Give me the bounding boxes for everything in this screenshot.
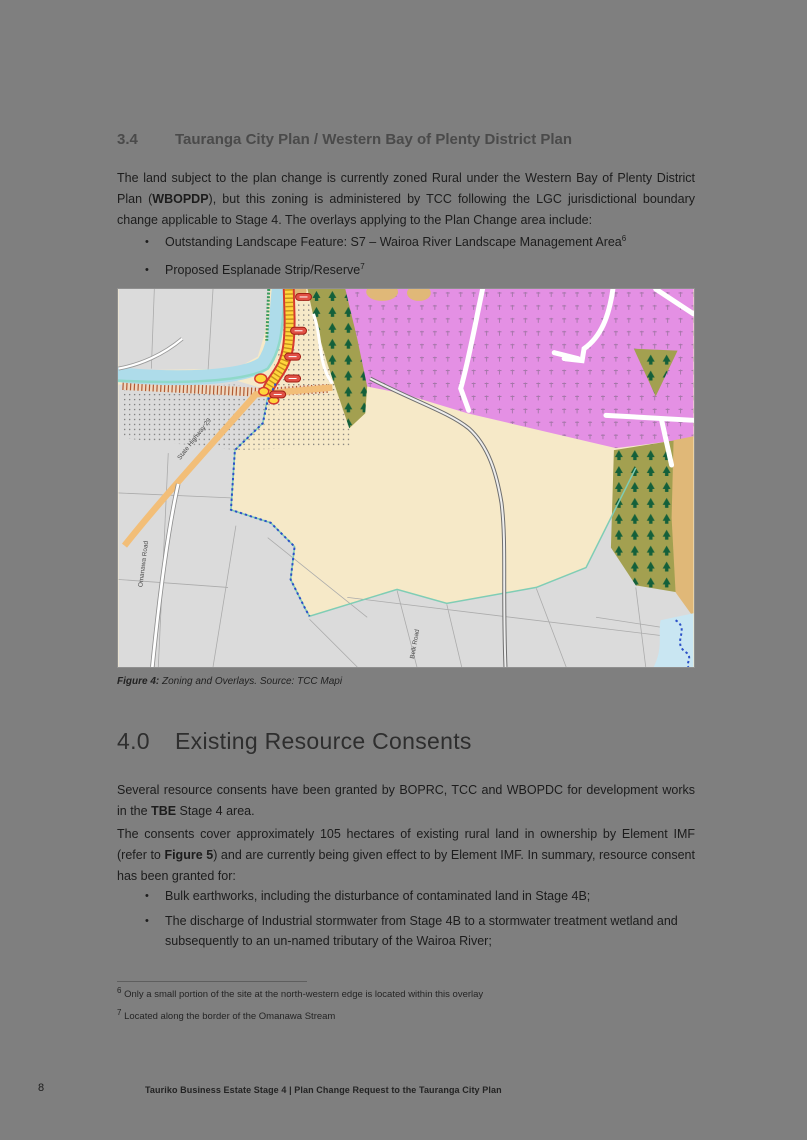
bullet-marker: • — [145, 232, 165, 252]
section-4-0-paragraph-1: Several resource consents have been gran… — [117, 780, 695, 822]
footnote: 7 Located along the border of the Omanaw… — [117, 1010, 695, 1023]
bullet-text-body: Outstanding Landscape Feature: S7 – Wair… — [165, 235, 622, 249]
paragraph-bold: Figure 5 — [164, 848, 213, 862]
section-title: Existing Resource Consents — [175, 728, 472, 755]
bullet-text: The discharge of Industrial stormwater f… — [165, 911, 695, 951]
bullet-marker: • — [145, 260, 165, 280]
bullet-item: • Outstanding Landscape Feature: S7 – Wa… — [117, 232, 695, 252]
bullet-marker: • — [145, 886, 165, 906]
section-title: Tauranga City Plan / Western Bay of Plen… — [175, 131, 572, 148]
footnote-ref: 6 — [622, 234, 626, 243]
footnote-ref: 7 — [360, 262, 364, 271]
zoning-map-figure: State Highway 29 Omanawa Road Belk Road — [117, 288, 695, 668]
bullet-text-body: Proposed Esplanade Strip/Reserve — [165, 263, 360, 277]
figure-caption-text: Zoning and Overlays. Source: TCC Mapi — [159, 676, 342, 687]
footer-text: Tauriko Business Estate Stage 4 | Plan C… — [145, 1085, 502, 1095]
section-number: 3.4 — [117, 131, 175, 148]
bullet-text: Bulk earthworks, including the disturban… — [165, 886, 695, 906]
footnote-text: Located along the border of the Omanawa … — [124, 1011, 335, 1022]
section-3-4-paragraph: The land subject to the plan change is c… — [117, 168, 695, 231]
paragraph-bold: WBOPDP — [152, 192, 208, 206]
footnote-separator — [117, 981, 307, 982]
bullet-marker: • — [145, 911, 165, 951]
bullet-item: • Proposed Esplanade Strip/Reserve7 — [117, 260, 695, 280]
bullet-text: Proposed Esplanade Strip/Reserve7 — [165, 260, 695, 280]
section-4-0-heading: 4.0 Existing Resource Consents — [117, 728, 695, 755]
figure-caption-label: Figure 4: — [117, 676, 159, 687]
bullet-item: • Bulk earthworks, including the disturb… — [117, 886, 695, 906]
section-4-0-paragraph-2: The consents cover approximately 105 hec… — [117, 824, 695, 887]
figure-caption: Figure 4: Zoning and Overlays. Source: T… — [117, 676, 695, 687]
section-3-4-heading: 3.4 Tauranga City Plan / Western Bay of … — [117, 131, 695, 148]
paragraph-bold: TBE — [151, 804, 176, 818]
document-page: 3.4 Tauranga City Plan / Western Bay of … — [0, 0, 807, 1140]
page-number: 8 — [38, 1082, 44, 1094]
footnote-number: 7 — [117, 1008, 121, 1017]
bullet-text: Outstanding Landscape Feature: S7 – Wair… — [165, 232, 695, 252]
zoning-map: State Highway 29 Omanawa Road Belk Road — [118, 289, 694, 667]
bullet-item: • The discharge of Industrial stormwater… — [117, 911, 695, 951]
footnote-number: 6 — [117, 986, 121, 995]
urban-area-northwest — [119, 289, 270, 371]
footnote-text: Only a small portion of the site at the … — [124, 989, 483, 1000]
paragraph-text: Stage 4 area. — [176, 804, 255, 818]
esplanade-strip — [267, 289, 269, 341]
footnote: 6 Only a small portion of the site at th… — [117, 988, 695, 1001]
section-number: 4.0 — [117, 728, 175, 755]
